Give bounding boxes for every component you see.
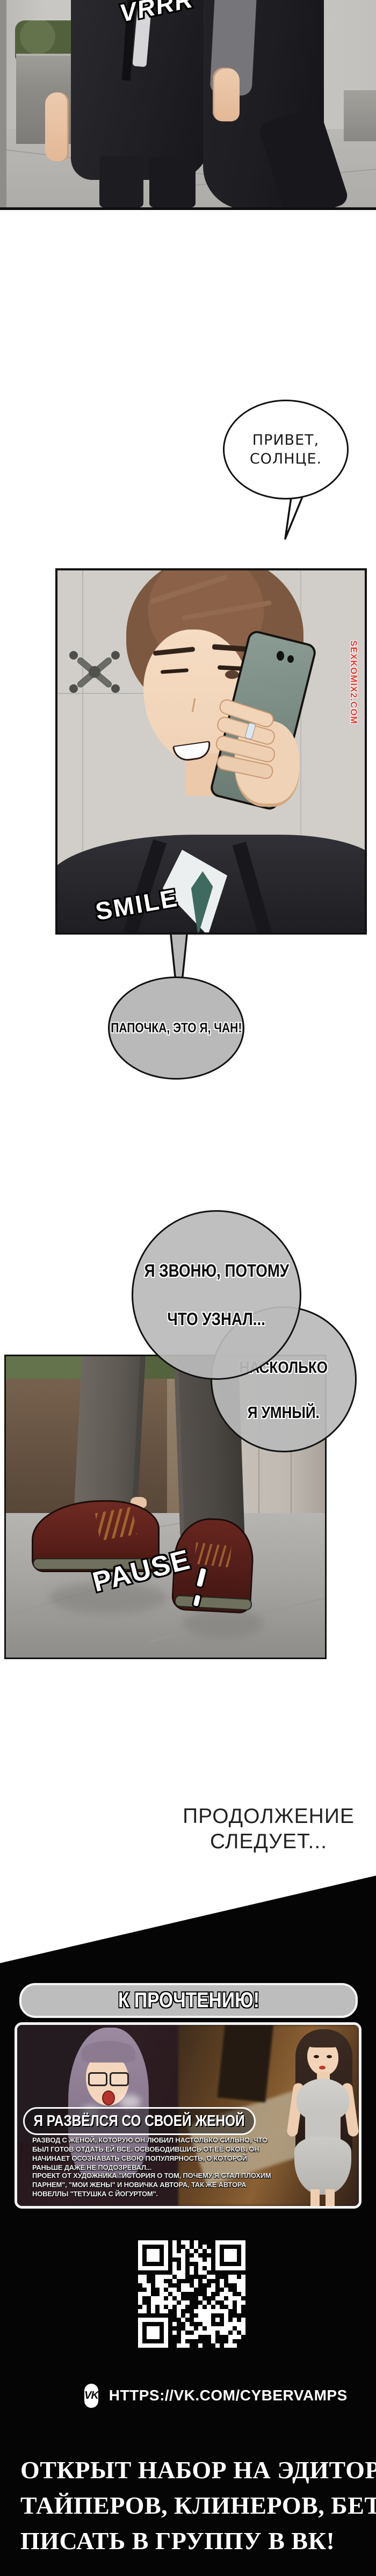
man-left-pants: [99, 156, 143, 207]
recruit-line: ПИСАТЬ В ГРУППУ В ВК!: [20, 2527, 335, 2555]
right-woman-leg: [326, 2189, 335, 2206]
right-woman-eye: [327, 2055, 332, 2058]
right-woman-mouth: [319, 2066, 326, 2070]
right-woman-bangs: [304, 2031, 343, 2047]
card-title-pill: Я РАЗВЁЛСЯ СО СВОЕЙ ЖЕНОЙ: [23, 2107, 256, 2135]
calling-text-line2: ЧТО УЗНАЛ...: [168, 1309, 266, 1329]
vk-url: HTTPS://VK.COM/CYBERVAMPS: [109, 2387, 348, 2404]
man-right-hand: [213, 68, 240, 121]
vk-link[interactable]: VK HTTPS://VK.COM/CYBERVAMPS: [84, 2383, 315, 2408]
panel-phone-call: SMILE: [55, 568, 367, 935]
right-shoe-laces: [194, 1543, 232, 1568]
promo-card: Я РАЗВЁЛСЯ СО СВОЕЙ ЖЕНОЙ РАЗВОД С ЖЕНОЙ…: [15, 2022, 361, 2209]
calling-text-line1: Я ЗВОНЮ, ПОТОМУ: [144, 1261, 289, 1281]
right-woman-eye: [314, 2055, 319, 2058]
card-art-shelf: [217, 2022, 273, 2102]
watermark: SEXKOMIX2.COM: [348, 640, 359, 725]
planter-box-right: [344, 90, 376, 141]
glass-clamp-hub: [89, 666, 100, 678]
greeting-text-line2: СОЛНЦЕ.: [250, 451, 322, 467]
glass-clamp-cap: [69, 684, 78, 693]
phone-camera-dot: [277, 651, 284, 661]
qr-code[interactable]: [138, 2240, 245, 2348]
calling-bubble: Я ЗВОНЮ, ПОТОМУ ЧТО УЗНАЛ...: [132, 1210, 301, 1380]
webtoon-page: VRRR ПРИВЕТ, СОЛНЦЕ.: [0, 0, 376, 2576]
glasses-icon: [110, 2072, 129, 2086]
greeting-text-line1: ПРИВЕТ,: [252, 432, 319, 448]
glasses-icon: [88, 2072, 107, 2086]
left-woman-mouth: [102, 2090, 115, 2105]
card-title-text: Я РАЗВЁЛСЯ СО СВОЕЙ ЖЕНОЙ: [34, 2112, 245, 2130]
recruit-line: ОТКРЫТ НАБОР НА ЭДИТОРОВ,: [20, 2456, 376, 2484]
phone-camera-dot: [287, 655, 294, 663]
man-eye-iris: [225, 670, 239, 679]
left-pant-leg: [74, 1355, 147, 1519]
glass-clamp-cap: [69, 651, 78, 660]
glass-clamp-cap: [111, 684, 120, 693]
left-woman-bangs: [82, 2041, 135, 2063]
wall-corner-shadow: [0, 0, 6, 207]
greeting-bubble: ПРИВЕТ, СОЛНЦЕ.: [223, 400, 349, 500]
to-be-continued-line2: СЛЕДУЕТ...: [172, 1829, 365, 1854]
recruit-line: ТАЙПЕРОВ, КЛИНЕРОВ, БЕТЫ.: [20, 2491, 376, 2520]
to-be-continued-line1: ПРОДОЛЖЕНИЕ: [172, 1804, 365, 1829]
vk-icon-label: VK: [84, 2390, 98, 2402]
smart-text-line2: Я УМНЫЙ.: [248, 1403, 320, 1422]
right-woman-leg: [310, 2189, 320, 2206]
to-be-continued: ПРОДОЛЖЕНИЕ СЛЕДУЕТ...: [172, 1804, 365, 1854]
man-left-pants: [149, 157, 196, 207]
glass-clamp-cap: [111, 651, 120, 660]
card-description-1: РАЗВОД С ЖЕНОЙ, КОТОРУЮ ОН ЛЮБИЛ НАСТОЛЬ…: [32, 2136, 275, 2172]
panel-street-men: VRRR: [0, 0, 376, 210]
phone-voice-bubble: ПАПОЧКА, ЭТО Я, ЧАН!: [108, 976, 244, 1080]
promo-banner: К ПРОЧТЕНИЮ!: [19, 1983, 358, 2018]
vk-icon: VK: [84, 2384, 98, 2408]
man-left-hand: [45, 92, 69, 161]
promo-banner-text: К ПРОЧТЕНИЮ!: [118, 1988, 259, 2013]
shoe-reflection: [183, 1609, 264, 1638]
phone-reply-text: ПАПОЧКА, ЭТО Я, ЧАН!: [111, 1021, 242, 1036]
card-description-2: ПРОЕКТ ОТ ХУДОЖНИКА "ИСТОРИЯ О ТОМ, ПОЧЕ…: [32, 2171, 275, 2198]
